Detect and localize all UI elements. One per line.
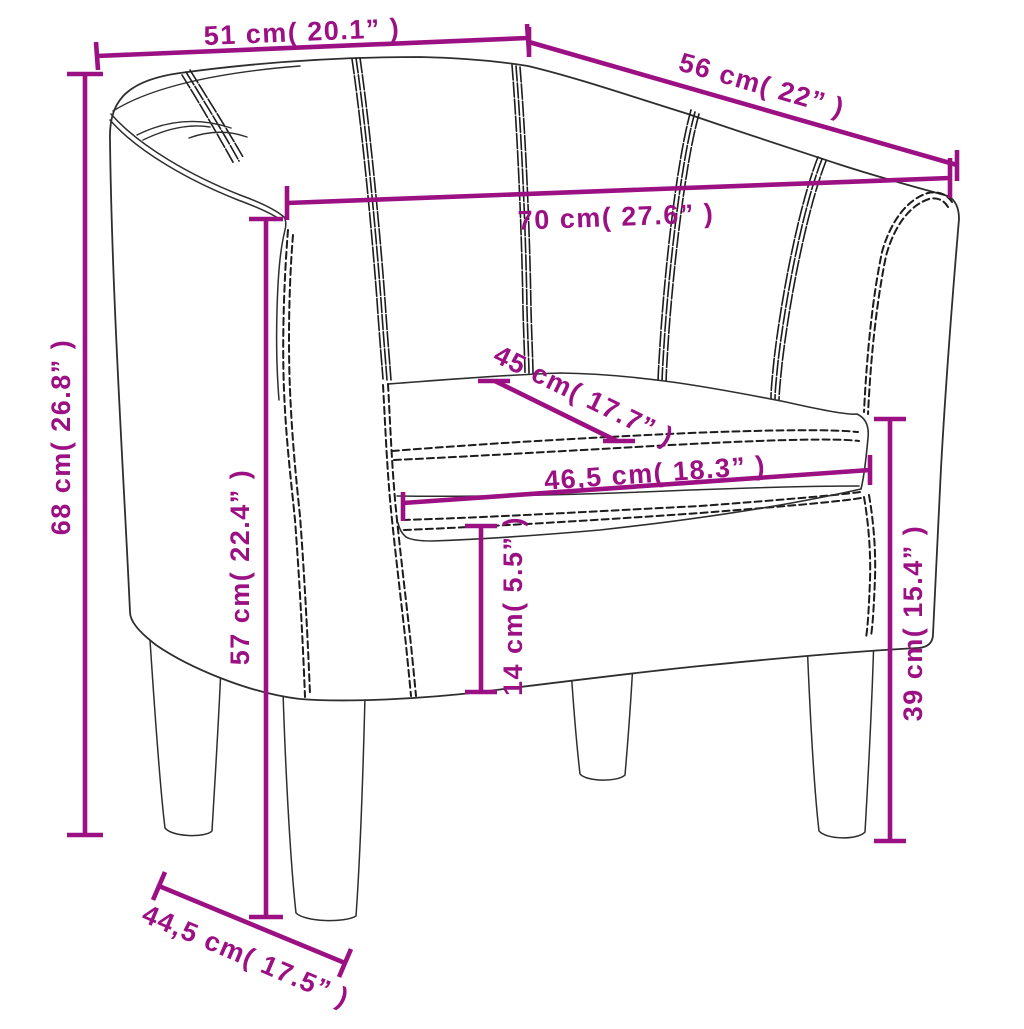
svg-text:57 cm( 22.4” ): 57 cm( 22.4” ): [225, 469, 255, 666]
svg-text:14 cm( 5.5” ): 14 cm( 5.5” ): [498, 516, 528, 696]
svg-text:39 cm( 15.4” ): 39 cm( 15.4” ): [898, 525, 928, 722]
svg-text:68 cm( 26.8” ): 68 cm( 26.8” ): [46, 339, 76, 536]
